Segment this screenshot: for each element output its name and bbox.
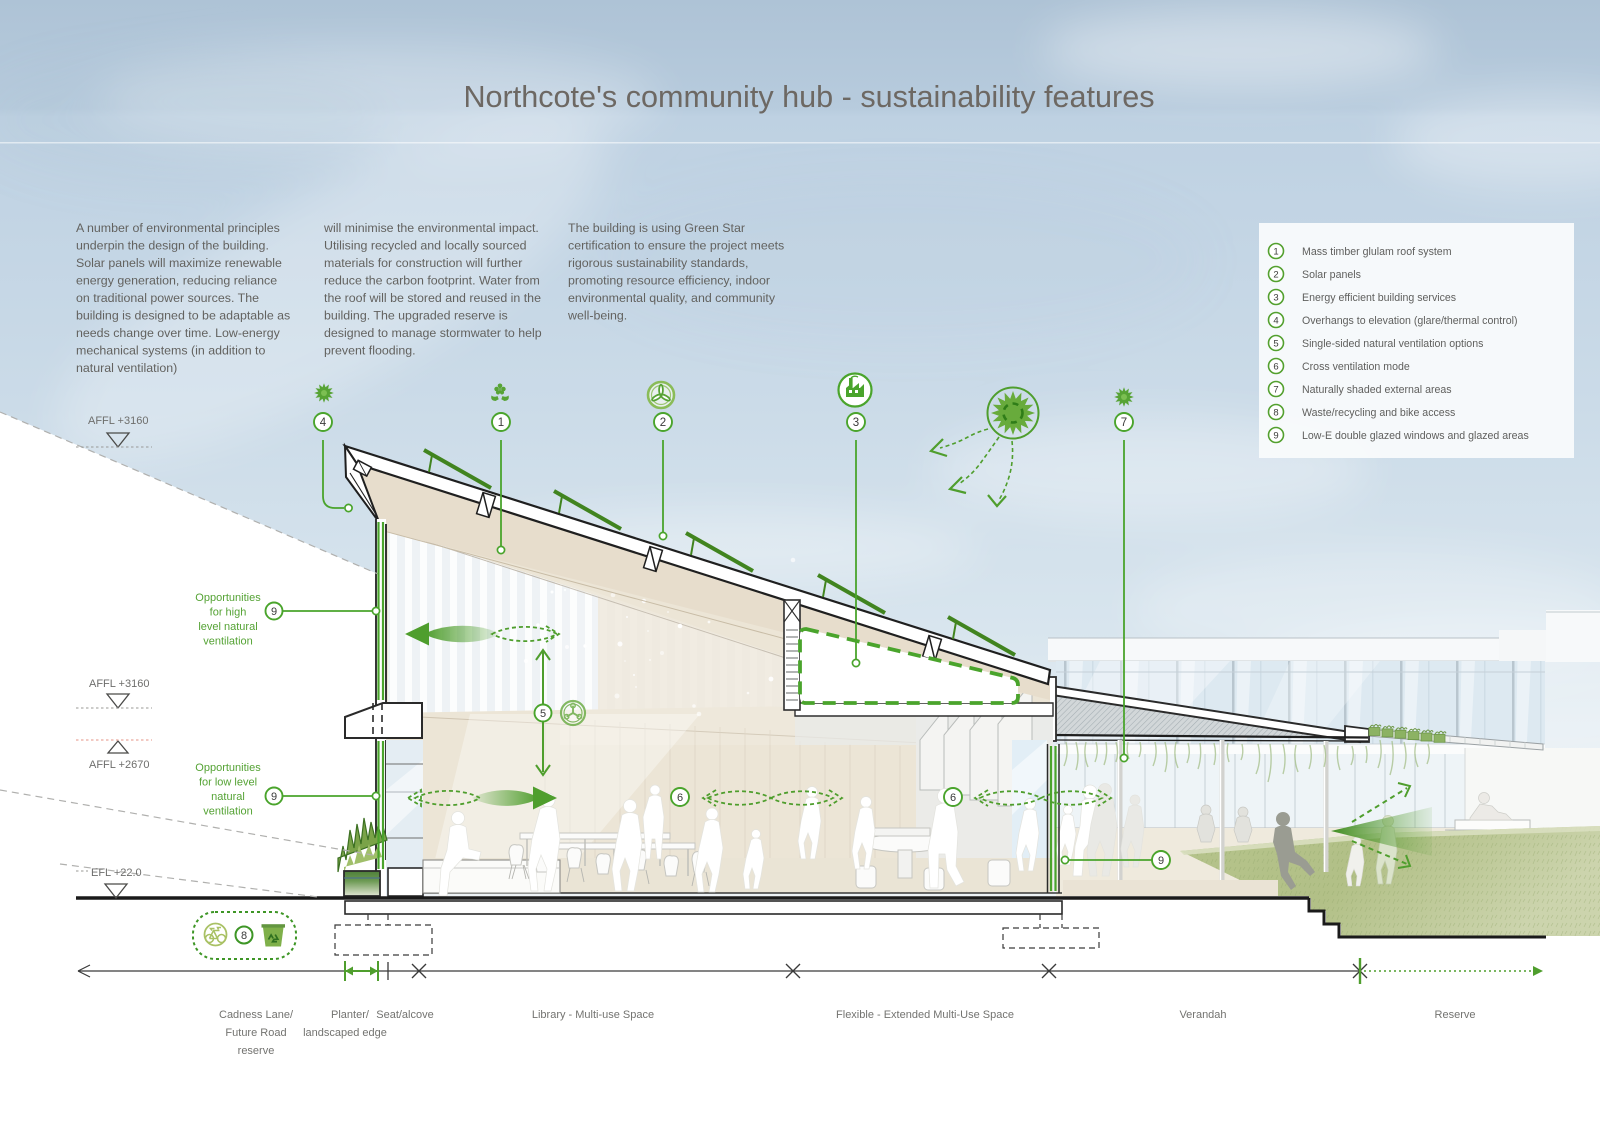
svg-text:AFFL +2670: AFFL +2670: [89, 759, 149, 771]
svg-text:Opportunities: Opportunities: [195, 762, 261, 774]
svg-text:building is designed to be ada: building is designed to be adaptable as: [76, 309, 290, 323]
svg-text:reserve: reserve: [238, 1045, 275, 1057]
svg-text:9: 9: [1273, 431, 1278, 442]
svg-text:8: 8: [1273, 408, 1278, 419]
svg-text:2: 2: [660, 417, 666, 429]
svg-text:9: 9: [1158, 855, 1164, 867]
svg-text:3: 3: [853, 417, 859, 429]
svg-text:Solar panels: Solar panels: [1302, 269, 1361, 281]
svg-text:A number of environmental prin: A number of environmental principles: [76, 221, 280, 235]
svg-text:Naturally shaded external area: Naturally shaded external areas: [1302, 384, 1452, 396]
svg-text:4: 4: [1273, 316, 1278, 327]
svg-text:designed to manage stormwater: designed to manage stormwater to help: [324, 326, 542, 340]
svg-text:needs change over time. Low-en: needs change over time. Low-energy: [76, 326, 281, 340]
svg-text:promoting resource efficiency,: promoting resource efficiency, indoor: [568, 274, 770, 288]
svg-text:The building is using Green St: The building is using Green Star: [568, 221, 745, 235]
svg-text:Solar panels will maximize ren: Solar panels will maximize renewable: [76, 256, 282, 270]
svg-text:on traditional power sources.: on traditional power sources. The: [76, 291, 259, 305]
svg-text:Utilising recycled and locally: Utilising recycled and locally sourced: [324, 239, 527, 253]
svg-text:Cadness Lane/: Cadness Lane/: [219, 1009, 294, 1021]
svg-text:Overhangs to elevation (glare/: Overhangs to elevation (glare/thermal co…: [1302, 315, 1518, 327]
svg-text:2: 2: [1273, 270, 1278, 281]
svg-text:Cross ventilation mode: Cross ventilation mode: [1302, 361, 1410, 373]
svg-text:Library - Multi-use Space: Library - Multi-use Space: [532, 1009, 654, 1021]
svg-text:4: 4: [320, 417, 327, 429]
svg-text:materials for construction wil: materials for construction will further: [324, 256, 522, 270]
svg-text:7: 7: [1121, 417, 1127, 429]
svg-text:ventilation: ventilation: [203, 636, 253, 648]
svg-text:Northcote's community hub - su: Northcote's community hub - sustainabili…: [463, 80, 1154, 114]
svg-text:natural ventilation): natural ventilation): [76, 361, 177, 375]
svg-text:AFFL +3160: AFFL +3160: [89, 678, 149, 690]
svg-text:5: 5: [1273, 339, 1278, 350]
svg-text:7: 7: [1273, 385, 1278, 396]
svg-text:ventilation: ventilation: [203, 806, 253, 818]
svg-text:certification to ensure the pr: certification to ensure the project meet…: [568, 239, 784, 253]
svg-text:prevent flooding.: prevent flooding.: [324, 344, 416, 358]
svg-text:Low-E double glazed windows an: Low-E double glazed windows and glazed a…: [1302, 430, 1529, 442]
svg-text:Verandah: Verandah: [1179, 1009, 1226, 1021]
svg-text:well-being.: well-being.: [567, 309, 627, 323]
svg-text:building. The upgraded reserve: building. The upgraded reserve is: [324, 309, 508, 323]
svg-text:landscaped edge: landscaped edge: [303, 1027, 387, 1039]
svg-text:Future Road: Future Road: [225, 1027, 286, 1039]
svg-text:Planter/: Planter/: [331, 1009, 370, 1021]
svg-text:Mass timber glulam roof system: Mass timber glulam roof system: [1302, 246, 1452, 258]
svg-text:environmental quality, and com: environmental quality, and community: [568, 291, 776, 305]
svg-text:Waste/recycling and bike acces: Waste/recycling and bike access: [1302, 407, 1455, 419]
svg-text:energy generation, reducing re: energy generation, reducing reliance: [76, 274, 277, 288]
svg-text:6: 6: [677, 792, 683, 804]
svg-text:1: 1: [498, 417, 504, 429]
svg-text:natural: natural: [211, 791, 245, 803]
svg-text:8: 8: [241, 930, 247, 942]
svg-text:Opportunities: Opportunities: [195, 592, 261, 604]
svg-text:Seat/alcove: Seat/alcove: [376, 1009, 433, 1021]
svg-text:1: 1: [1273, 247, 1278, 258]
svg-text:5: 5: [540, 708, 546, 720]
svg-text:for low level: for low level: [199, 777, 257, 789]
svg-text:for high: for high: [210, 607, 247, 619]
svg-text:9: 9: [271, 791, 277, 803]
svg-text:will minimise the environmenta: will minimise the environmental impact.: [323, 221, 539, 235]
svg-text:6: 6: [1273, 362, 1278, 373]
svg-text:Flexible - Extended Multi-Use: Flexible - Extended Multi-Use Space: [836, 1009, 1014, 1021]
svg-text:Reserve: Reserve: [1435, 1009, 1476, 1021]
svg-text:reduce the carbon footprint. W: reduce the carbon footprint. Water from: [324, 274, 540, 288]
svg-text:rigorous sustainability standa: rigorous sustainability standards,: [568, 256, 748, 270]
svg-text:the roof will be stored and re: the roof will be stored and reused in th…: [324, 291, 541, 305]
svg-text:underpin the design of the bui: underpin the design of the building.: [76, 239, 269, 253]
svg-text:Energy efficient building serv: Energy efficient building services: [1302, 292, 1456, 304]
svg-text:level natural: level natural: [198, 621, 257, 633]
svg-text:AFFL +3160: AFFL +3160: [88, 415, 148, 427]
svg-text:mechanical systems (in additio: mechanical systems (in addition to: [76, 344, 265, 358]
svg-text:EFL +22.0: EFL +22.0: [91, 867, 142, 879]
svg-text:Single-sided natural ventilati: Single-sided natural ventilation options: [1302, 338, 1483, 350]
svg-text:3: 3: [1273, 293, 1278, 304]
svg-text:9: 9: [271, 606, 277, 618]
svg-text:6: 6: [950, 792, 956, 804]
